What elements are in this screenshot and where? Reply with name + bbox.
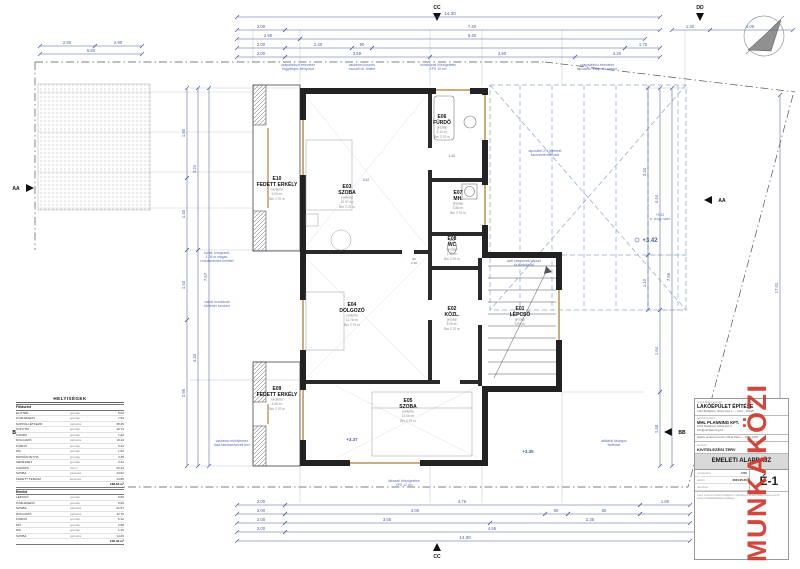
dimension-label: 3.59 [353, 51, 362, 56]
room-finish: beton [70, 466, 107, 471]
table-row: 188.62 m² [16, 482, 124, 488]
room-finish: greslap [70, 528, 107, 533]
room-label: E06FÜRDŐgreslap6.12 m²Bm 2.70 m [433, 114, 451, 139]
dimension-label: 2.00 [257, 42, 266, 47]
bed [372, 392, 472, 456]
room-label: E07MH.greslap2.88 m²Bm 2.70 m [450, 190, 466, 215]
room-finish: greslap [70, 495, 107, 500]
dimension-label: 4.05 [746, 24, 755, 29]
sheet-label: rajzszám [697, 485, 708, 489]
room-finish: kerámia [70, 477, 107, 482]
room-name: KÖZLEKEDŐ [16, 416, 70, 421]
dimension-label: 2.95 [181, 388, 186, 397]
room-area: 1.15 [107, 528, 124, 533]
rooms-table: HELYISÉGEK Földszint ELŐTÉR greslap 5.62… [16, 396, 124, 545]
room-finish: greslap [70, 449, 107, 454]
dimension-label: 3.34 [642, 167, 647, 176]
dimension-label: 14.30 [444, 11, 456, 16]
copyright-note: A terv a tervező szellemi tulajdona, más… [695, 492, 788, 501]
dimension-label: 1.64 [654, 346, 659, 355]
dimension-label: 2.00 [257, 526, 266, 531]
dimension-label: 4.20 [613, 51, 622, 56]
dimension-label: 1.48 [654, 424, 659, 433]
dimension-label: 80 [602, 508, 607, 513]
room-name: DOLGOZÓ [16, 512, 70, 517]
washer-drum [465, 187, 475, 197]
room-area: 2.88 [107, 523, 124, 528]
dimension-label: 17.01 [774, 282, 779, 293]
room-name: ELŐTÉR [16, 411, 70, 416]
room-area: 6.12 [107, 517, 124, 522]
room-name: FÜRDŐ [16, 517, 70, 522]
room-name: FEDETT TERASZ [16, 477, 70, 482]
dimension-label: 5.83 [87, 48, 96, 53]
balcony-column [253, 211, 266, 251]
level-marker: +3.42 [642, 238, 658, 244]
dimension-label: 1.40 [449, 154, 455, 158]
dimension-label: 1.75 [639, 42, 648, 47]
room-finish: parketta [70, 471, 107, 476]
level-marker: +3.37 [346, 437, 358, 442]
sink [464, 116, 476, 128]
firm-email: info@mhlplanning.hu [697, 429, 786, 432]
room-name: KONYHA [16, 427, 70, 432]
room-finish: parketta [70, 534, 107, 539]
dimension-label: 6.40 [468, 33, 477, 38]
dimension-label: 1.30 [686, 24, 695, 29]
date-value: 2021.05.25 [733, 478, 747, 482]
room-name: Emelet [16, 490, 70, 495]
room-finish: parketta [70, 422, 107, 427]
room-finish: greslap [70, 411, 107, 416]
room-finish: greslap [70, 416, 107, 421]
room-name: FÜRDŐ [16, 444, 70, 449]
balcony-column [253, 85, 266, 125]
section-label: AA [12, 186, 20, 192]
dimension-label: 2.00 [257, 51, 266, 56]
phase-value: KIVITELEZÉSI TERV [697, 447, 786, 452]
room-area: 20.44 [107, 466, 124, 471]
dimension-label: 5.42 [363, 178, 370, 182]
room-area: 15.72 [107, 427, 124, 432]
room-finish: greslap [70, 523, 107, 528]
desk [306, 292, 344, 350]
room-area: 12.76 [107, 512, 124, 517]
note-text: lapostető 2% lejtésselkavicsleterhelésse… [529, 149, 562, 157]
dimension-label: 4.33 [192, 353, 197, 362]
room-finish: parketta [70, 438, 107, 443]
stair-direction-arrow [544, 266, 552, 274]
dimension-label: 1.40 [181, 280, 186, 289]
note-text: vasbeton erkélylemezlásd tartószerkezeti… [214, 439, 250, 447]
room-name: KÖZLEKEDŐ [16, 501, 70, 506]
rooms-table-title: HELYISÉGEK [16, 396, 124, 403]
scale-label: méretarány [697, 471, 711, 475]
dimension-label: 14.30 [459, 535, 471, 540]
room-area: 5.06 [107, 501, 124, 506]
note-text: vasbeton koszorúmonolit vb. födém [349, 63, 376, 71]
dimension-label: 2.00 [257, 517, 266, 522]
room-name: KAMRA [16, 433, 70, 438]
room-label: E01LÉPCSŐgreslap6.80 m² [510, 306, 531, 326]
room-finish: greslap [70, 455, 107, 460]
dimension-label: 90 [360, 42, 365, 47]
room-label: E02KÖZL.greslap5.06 m²Bm 2.70 m [444, 306, 460, 331]
room-label: E05SZOBAparketta14.06 m²Bm 2.70 m [399, 398, 417, 423]
section-label: CC [433, 5, 441, 11]
dimension-label: 3.55 [383, 517, 392, 522]
room-label: E03SZOBAparketta21.97 m²Bm 2.70 m [338, 184, 356, 209]
room-name: GÉPÉSZET [16, 460, 70, 465]
room-area: 1.92 [107, 433, 124, 438]
room-name: WC [16, 528, 70, 533]
dimension-label: 2.90 [114, 40, 123, 45]
dimension-label: 2.90 [264, 33, 273, 38]
room-area: 38.45 [107, 422, 124, 427]
dimension-label: 4.55 [488, 526, 497, 531]
room-name: NAPPALI-ÉTKEZŐ [16, 422, 70, 427]
room-name: LÉPCSŐ [16, 495, 70, 500]
room-finish: greslap [70, 460, 107, 465]
note-text: korlát: üvegezett,1.05 m magas,rozsdamen… [200, 251, 234, 263]
room-name: SZOBA [16, 534, 70, 539]
dimension-label: 2.00 [257, 24, 266, 29]
dimension-label: 4.44 [654, 194, 659, 203]
dimension-label: 2.10 [411, 261, 417, 265]
room-name: GARÁZS [16, 466, 70, 471]
room-name: MH. [16, 523, 70, 528]
room-area: 106.40 m² [107, 539, 124, 544]
room-area: 13.62 [107, 471, 124, 476]
room-area: 188.62 m² [107, 482, 124, 487]
dimension-label: 1.10 [642, 278, 647, 287]
furniture [306, 140, 472, 456]
dimension-label: 4.75 [458, 499, 467, 504]
project-address: 1112 Budapest, Minta utca 1. — Hrsz.: 12… [697, 410, 786, 413]
dimension-label: 7.40 [468, 24, 477, 29]
room-area: 4.35 [107, 455, 124, 460]
level-marker: +3.35 [522, 449, 534, 454]
note-text: csapadékvíz elvezetéslapostető rétegrend… [577, 63, 617, 71]
room-area: 14.06 [107, 534, 124, 539]
room-area: 3.41 [107, 460, 124, 465]
dimension-label: 1.80 [661, 499, 670, 504]
room-finish: greslap [70, 427, 107, 432]
room-area: 10.14 [107, 438, 124, 443]
room-area: 21.97 [107, 506, 124, 511]
room-label: E08WCgreslap1.15 m²Bm 2.70 m [444, 236, 460, 261]
note-text: attikafal bádogosfedéssel [601, 439, 627, 447]
rooms-table-body: Földszint ELŐTÉR greslap 5.62 KÖZLEKEDŐ … [16, 404, 124, 545]
dimension-label: 7.56 [666, 272, 671, 281]
room-diagonals [306, 96, 478, 458]
dimension-label: 2.90 [498, 51, 507, 56]
dimension-label: 3.24 [192, 164, 197, 173]
north-arrow-icon [744, 16, 784, 56]
dimension-label: 1.80 [181, 128, 186, 137]
dimension-label: 2.00 [257, 499, 266, 504]
room-area: 5.62 [107, 411, 124, 416]
room-name: SZOBA [16, 471, 70, 476]
neighbour-building [38, 84, 150, 210]
responsible-designer: felelős építész tervező: Minta Péter — É… [697, 436, 786, 439]
table-row: 106.40 m² [16, 539, 124, 545]
dimension-label: 2.00 [257, 508, 266, 513]
note-text: lábazati hőszigetelésXPS 12 cm [388, 479, 420, 487]
drawing-title: EMELETI ALAPRAJZ [695, 454, 788, 470]
room-label: E10FEDETT ERKÉLYkerámia6.04 m²Bm 2.70 m [257, 176, 298, 201]
note-text: homlokzati hőszigetelésEPS 15 cm [420, 63, 456, 71]
room-name: WC [16, 449, 70, 454]
room-finish: greslap [70, 444, 107, 449]
balcony-column [253, 426, 266, 466]
section-label: AA [718, 198, 726, 204]
note-text: +5.32b. vízgy. szint [650, 213, 670, 221]
level-marker-symbol [635, 238, 639, 242]
room-area: 7.54 [107, 416, 124, 421]
dimension-label: 1.40 [181, 209, 186, 218]
dimension-label: 7.57 [203, 272, 208, 281]
dimension-label: 2.35 [586, 517, 595, 522]
note-text: csapadékvíz elvezetésfüggőleges lefolyóv… [281, 63, 315, 71]
room-finish: greslap [70, 433, 107, 438]
room-finish: parketta [70, 506, 107, 511]
dimension-label: 4.00 [411, 508, 420, 513]
room-finish: greslap [70, 517, 107, 522]
room-finish: greslap [70, 501, 107, 506]
nightstand [306, 214, 318, 226]
section-label: CC [433, 554, 441, 560]
room-area: 5.24 [107, 444, 124, 449]
title-block: megrendelő / építtető LAKÓÉPÜLET ÉPÍTÉSE… [694, 398, 789, 560]
note-text: vakolt homlokzattörtfehér színben [204, 300, 230, 308]
dimension-label: 2.93 [63, 40, 72, 45]
room-finish: parketta [70, 512, 107, 517]
dimension-label: 90 [554, 508, 559, 513]
room-name: SZOBA [16, 506, 70, 511]
dimension-label: 2.40 [314, 42, 323, 47]
room-area: 6.80 [107, 495, 124, 500]
room-name: Földszint [16, 405, 70, 410]
section-label: DD [696, 5, 704, 11]
room-area: 14.85 [107, 477, 124, 482]
room-name: MOSÓKONYHA [16, 455, 70, 460]
scale-value: 1:50 [741, 471, 747, 475]
table-round [331, 230, 351, 250]
sheet-number: É-1 [750, 470, 788, 491]
room-area: 1.52 [107, 449, 124, 454]
room-name: DOLGOZÓ [16, 438, 70, 443]
section-label: BB [678, 430, 686, 436]
date-label: dátum [697, 478, 705, 482]
